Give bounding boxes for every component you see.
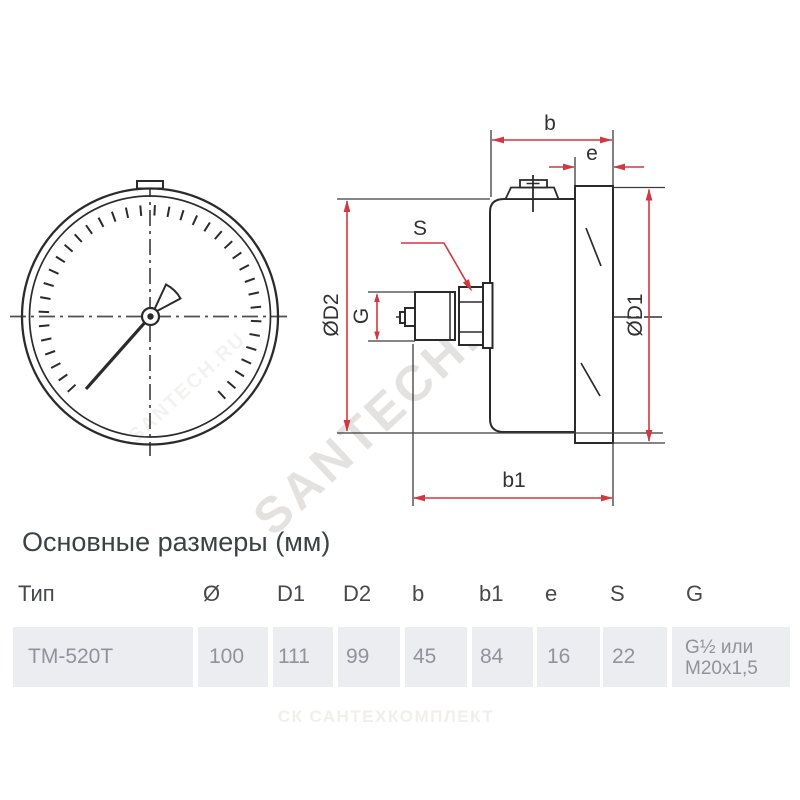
back-flange bbox=[575, 186, 613, 443]
stem-collar bbox=[483, 283, 493, 348]
square-end bbox=[405, 308, 415, 326]
hex-nut bbox=[459, 287, 483, 345]
connection-stem bbox=[400, 283, 493, 348]
col-header-b1: b1 bbox=[479, 581, 503, 607]
cell-g-line2: М20х1,5 bbox=[685, 658, 790, 679]
case-body bbox=[490, 199, 575, 432]
dim-label-g: G bbox=[350, 308, 374, 324]
dim-label-e: e bbox=[586, 142, 598, 166]
cell-diameter: 100 bbox=[198, 627, 268, 687]
dim-label-b1: b1 bbox=[502, 469, 525, 493]
dim-label-s: S bbox=[413, 217, 427, 241]
col-header-d1: D1 bbox=[277, 581, 305, 607]
col-header-d: Ø bbox=[203, 581, 220, 607]
thread-cylinder bbox=[415, 292, 455, 340]
cell-s: 22 bbox=[603, 627, 667, 687]
col-header-d2: D2 bbox=[343, 581, 371, 607]
footer-brand-logo: СКСАНТЕХКОМПЛЕКТ bbox=[278, 707, 495, 727]
cell-type: ТМ-520Т bbox=[13, 627, 193, 687]
gauge-front-view bbox=[10, 181, 291, 456]
cell-b: 45 bbox=[405, 627, 467, 687]
cell-b1: 84 bbox=[472, 627, 533, 687]
cell-g: G½ или М20х1,5 bbox=[672, 627, 790, 687]
col-header-tip: Тип bbox=[18, 581, 55, 607]
table-title: Основные размеры (мм) bbox=[22, 527, 330, 558]
product-dimensions-figure: SANTECH.RU SANTECH.RU bbox=[0, 0, 800, 800]
dim-label-d2: ØD2 bbox=[320, 293, 344, 336]
cell-g-line1: G½ или bbox=[685, 637, 790, 658]
cell-d1: 111 bbox=[273, 627, 333, 687]
cell-e: 16 bbox=[537, 627, 600, 687]
gauge-side-view bbox=[337, 130, 665, 506]
col-header-s: S bbox=[610, 581, 625, 607]
col-header-g: G bbox=[686, 581, 703, 607]
col-header-b: b bbox=[412, 581, 424, 607]
dim-label-b: b bbox=[544, 112, 556, 136]
col-header-e: e bbox=[545, 581, 557, 607]
brand-mark: СК bbox=[278, 707, 304, 726]
cell-d2: 99 bbox=[338, 627, 400, 687]
dim-label-d1: ØD1 bbox=[624, 293, 648, 336]
brand-name: САНТЕХКОМПЛЕКТ bbox=[309, 707, 494, 726]
